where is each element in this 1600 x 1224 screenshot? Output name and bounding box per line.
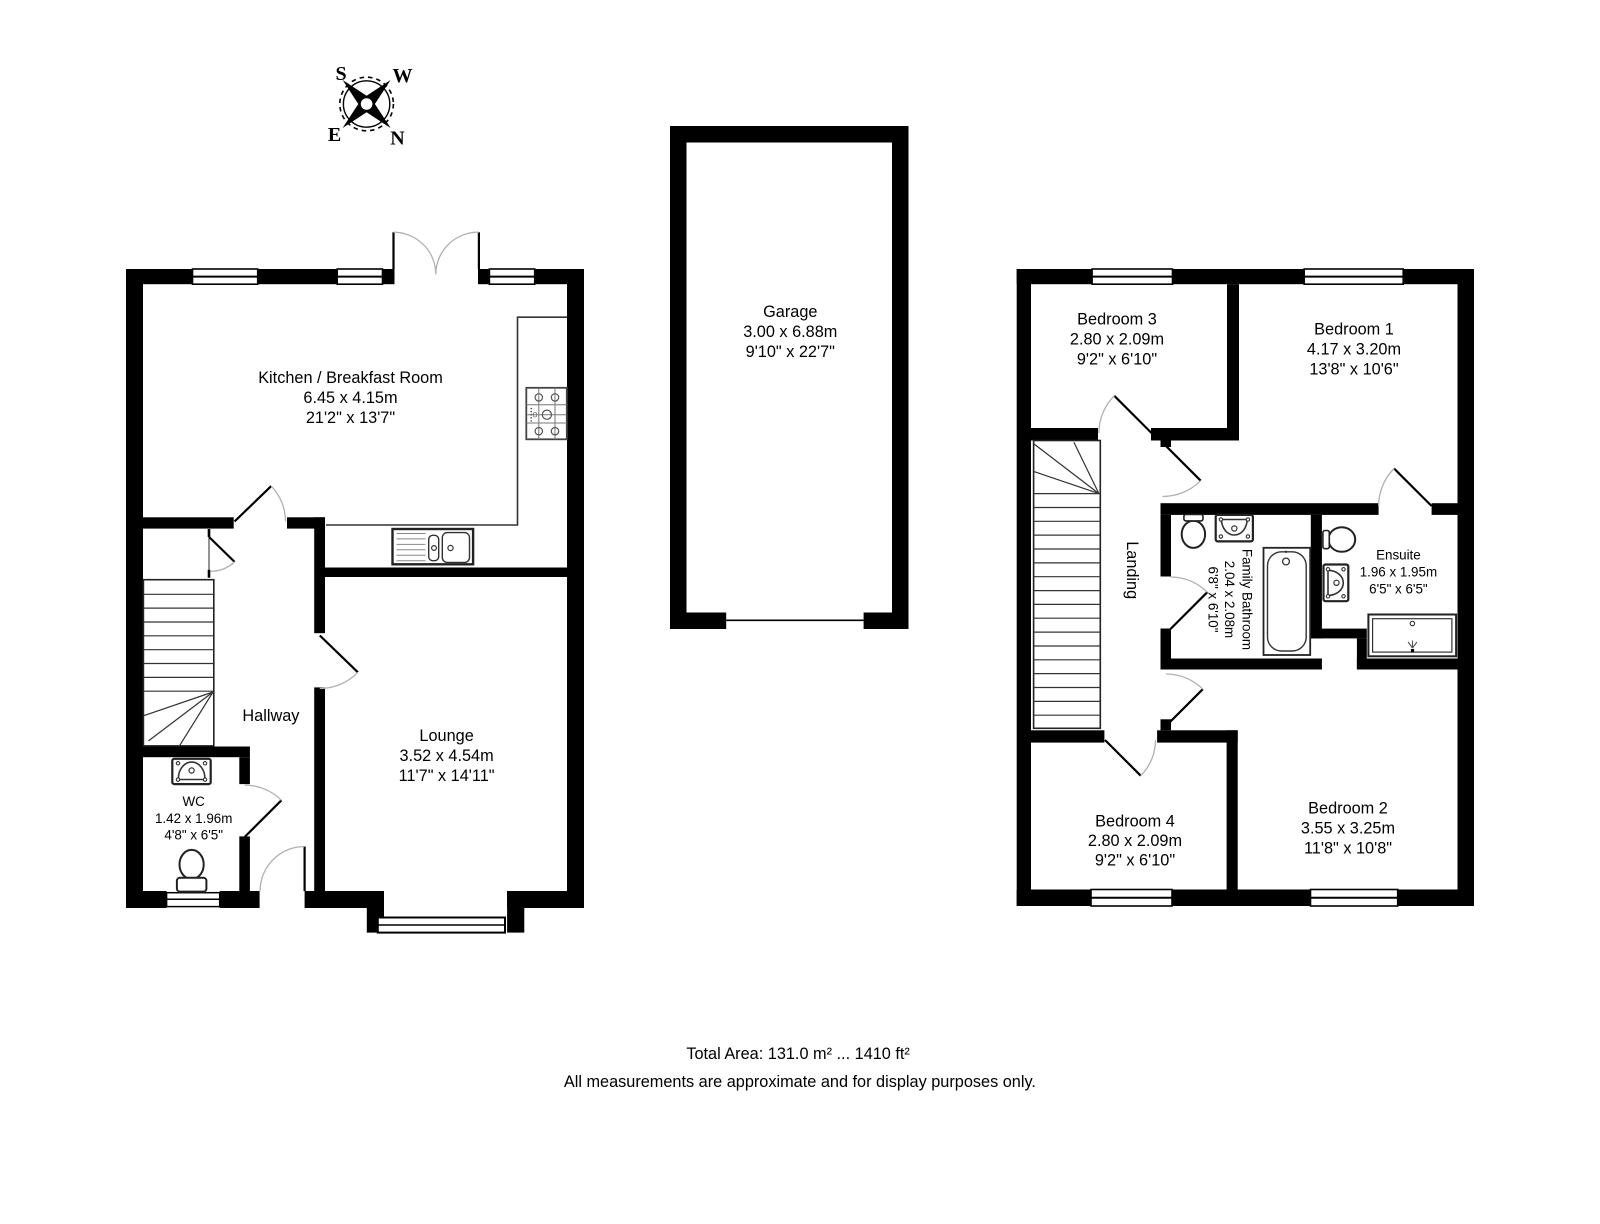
svg-text:W: W <box>393 65 413 87</box>
svg-text:13'8" x 10'6": 13'8" x 10'6" <box>1309 361 1399 379</box>
svg-text:4'8" x 6'5": 4'8" x 6'5" <box>164 827 223 842</box>
svg-text:S: S <box>335 63 346 85</box>
svg-text:6'5" x 6'5": 6'5" x 6'5" <box>1369 581 1428 596</box>
svg-text:3.55 x 3.25m: 3.55 x 3.25m <box>1301 820 1395 838</box>
svg-text:Bedroom 1: Bedroom 1 <box>1314 321 1394 339</box>
svg-text:3.00 x 6.88m: 3.00 x 6.88m <box>743 323 837 341</box>
svg-text:9'2" x 6'10": 9'2" x 6'10" <box>1077 351 1157 369</box>
svg-text:Ensuite: Ensuite <box>1376 547 1421 562</box>
svg-text:E: E <box>328 124 341 146</box>
svg-text:2.80 x 2.09m: 2.80 x 2.09m <box>1088 832 1182 850</box>
svg-text:2.80 x 2.09m: 2.80 x 2.09m <box>1070 331 1164 349</box>
svg-text:Hallway: Hallway <box>242 707 300 725</box>
svg-text:9'10" x 22'7": 9'10" x 22'7" <box>746 343 836 361</box>
svg-text:Kitchen / Breakfast Room: Kitchen / Breakfast Room <box>258 369 443 387</box>
svg-text:1.96 x 1.95m: 1.96 x 1.95m <box>1360 564 1437 579</box>
svg-text:4.17 x 3.20m: 4.17 x 3.20m <box>1307 341 1401 359</box>
svg-text:6'8" x 6'10": 6'8" x 6'10" <box>1205 567 1220 633</box>
svg-text:Bedroom 2: Bedroom 2 <box>1308 800 1388 818</box>
svg-text:Bedroom 3: Bedroom 3 <box>1077 311 1157 329</box>
svg-text:WC: WC <box>183 794 206 809</box>
svg-text:Landing: Landing <box>1123 541 1141 599</box>
svg-text:Family Bathroom: Family Bathroom <box>1240 549 1255 650</box>
svg-text:6.45 x 4.15m: 6.45 x 4.15m <box>303 389 397 407</box>
svg-text:3.52 x 4.54m: 3.52 x 4.54m <box>400 747 494 765</box>
svg-text:21'2" x 13'7": 21'2" x 13'7" <box>306 409 396 427</box>
svg-text:Garage: Garage <box>763 303 817 321</box>
svg-text:11'7" x 14'11": 11'7" x 14'11" <box>399 767 495 785</box>
svg-text:Total Area: 131.0 m² ... 1410: Total Area: 131.0 m² ... 1410 ft² <box>686 1045 910 1063</box>
svg-text:Lounge: Lounge <box>419 727 473 745</box>
svg-text:2.04 x 2.08m: 2.04 x 2.08m <box>1222 561 1237 638</box>
svg-text:All measurements are approxima: All measurements are approximate and for… <box>564 1073 1036 1091</box>
svg-text:N: N <box>390 128 405 150</box>
svg-text:11'8" x 10'8": 11'8" x 10'8" <box>1304 840 1392 858</box>
svg-text:Bedroom 4: Bedroom 4 <box>1095 813 1175 831</box>
svg-text:1.42 x 1.96m: 1.42 x 1.96m <box>155 811 232 826</box>
svg-text:9'2" x 6'10": 9'2" x 6'10" <box>1095 852 1175 870</box>
